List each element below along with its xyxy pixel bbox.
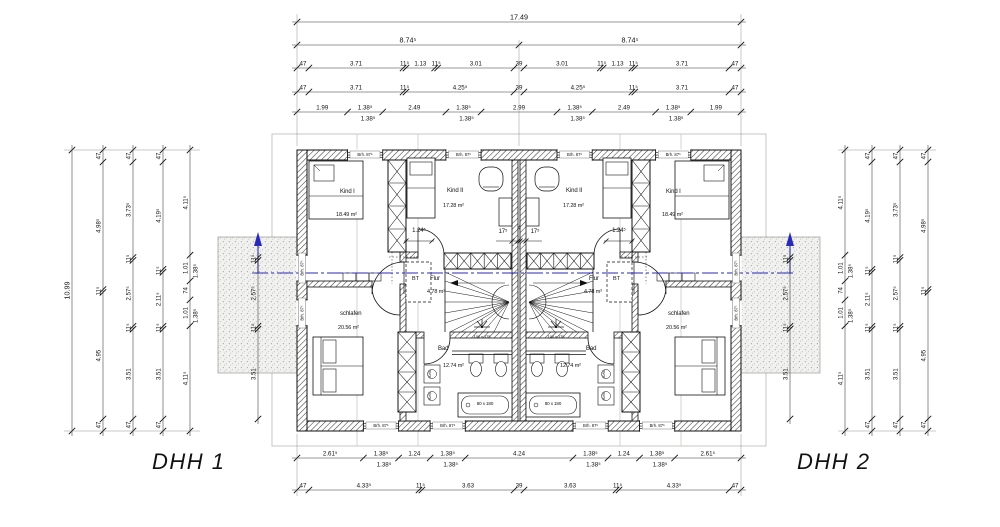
svg-text:2.57⁵: 2.57⁵ [892,286,899,301]
svg-text:3.71: 3.71 [676,61,689,68]
bathtub-size-label-right: 80 x 180 [531,401,575,406]
svg-text:Brh. 87⁵: Brh. 87⁵ [734,260,739,276]
svg-text:11⁵: 11⁵ [400,85,409,92]
svg-text:2.57⁵: 2.57⁵ [782,286,789,301]
svg-text:1.38⁵: 1.38⁵ [193,308,200,323]
svg-text:2.11⁵: 2.11⁵ [864,292,871,306]
svg-text:2.61⁵: 2.61⁵ [700,451,715,458]
svg-text:2.49: 2.49 [408,105,421,112]
svg-text:47: 47 [732,61,739,68]
room-name-flur-left: Flur [430,276,440,282]
svg-text:11⁵: 11⁵ [782,254,789,263]
svg-text:Brh. 87⁵: Brh. 87⁵ [357,152,373,157]
svg-text:47: 47 [921,421,927,428]
room-area-bad-left: 12.74 m² [443,363,464,369]
svg-text:1.01: 1.01 [838,262,844,274]
svg-text:11⁵: 11⁵ [920,286,927,295]
svg-text:2.49: 2.49 [618,105,631,112]
svg-text:11⁵: 11⁵ [864,266,871,275]
svg-text:4.95: 4.95 [96,349,102,361]
svg-text:47: 47 [865,421,871,428]
room-area-kind2-right: 17.28 m² [563,203,584,209]
svg-text:1.01: 1.01 [183,262,189,274]
svg-text:2.11⁵: 2.11⁵ [155,292,162,306]
svg-text:2.57⁵: 2.57⁵ [250,286,257,301]
svg-text:1.38⁵: 1.38⁵ [583,451,598,458]
svg-text:4.98⁵: 4.98⁵ [95,218,102,233]
room-name-bad-right: Bad [586,346,596,352]
room-area-schlafen-left: 20.56 m² [338,325,359,331]
svg-text:11⁵: 11⁵ [416,483,425,490]
svg-text:47: 47 [893,152,899,159]
svg-text:11⁵: 11⁵ [864,323,871,332]
svg-text:1.38⁵: 1.38⁵ [377,462,392,469]
svg-text:Brh. 87⁵: Brh. 87⁵ [373,423,389,428]
svg-text:1.38⁵: 1.38⁵ [443,462,458,469]
room-name-kind1-left: Kind I [340,189,355,195]
svg-text:11⁵: 11⁵ [782,323,789,332]
svg-text:39: 39 [516,483,523,490]
svg-text:11⁵: 11⁵ [629,85,638,92]
svg-text:47: 47 [126,152,132,159]
room-area-flur-right: 4.78 m² [584,289,602,295]
inline-dim-party-left: 17⁵ [495,229,511,235]
svg-text:4.25⁵: 4.25⁵ [453,85,468,92]
svg-text:3.51: 3.51 [251,368,257,380]
svg-text:39: 39 [516,85,523,92]
svg-text:1.38⁵: 1.38⁵ [650,451,665,458]
svg-text:1.13: 1.13 [414,61,427,68]
svg-text:1.38⁵: 1.38⁵ [358,105,373,112]
svg-text:3.51: 3.51 [156,368,162,380]
svg-text:Brh. 87⁵: Brh. 87⁵ [456,152,472,157]
svg-text:11⁵: 11⁵ [613,483,622,490]
svg-text:3.51: 3.51 [126,368,132,380]
svg-text:3.63: 3.63 [462,483,475,490]
svg-text:1.38⁵: 1.38⁵ [666,105,681,112]
svg-text:1.38⁵: 1.38⁵ [193,264,200,279]
room-area-kind2-left: 17.28 m² [443,203,464,209]
svg-text:1.24: 1.24 [618,451,631,458]
floorplan-drawing: 60/6060/6060/6060/6017.498.74⁵8.74⁵473.7… [0,0,1000,527]
room-name-schlafen-right: schlafen [668,311,690,317]
svg-text:4.19⁵: 4.19⁵ [155,208,162,223]
inline-dim-door-right: 1.24⁵ [605,228,633,234]
svg-text:3.73⁵: 3.73⁵ [892,202,899,217]
svg-text:47: 47 [300,85,307,92]
room-name-schlafen-left: schlafen [340,311,362,317]
svg-text:3.73⁵: 3.73⁵ [125,202,132,217]
svg-text:11⁵: 11⁵ [155,266,162,275]
svg-text:11⁵: 11⁵ [432,61,441,68]
svg-text:1.38⁵: 1.38⁵ [567,105,582,112]
svg-text:Brh. 87⁵: Brh. 87⁵ [666,152,682,157]
svg-text:2.57⁵: 2.57⁵ [125,286,132,301]
svg-text:1.99: 1.99 [316,105,329,112]
svg-text:10.99: 10.99 [62,282,71,300]
svg-text:1.38⁵: 1.38⁵ [848,308,855,323]
room-area-kind1-right: 18.49 m² [662,212,683,218]
svg-text:1.38⁵: 1.38⁵ [456,105,471,112]
svg-text:4.24: 4.24 [513,451,526,458]
svg-text:3.71: 3.71 [676,85,689,92]
svg-text:3.51: 3.51 [865,368,871,380]
svg-text:4.11⁵: 4.11⁵ [837,371,844,385]
svg-text:1.24: 1.24 [408,451,421,458]
room-name-bt-right: BT [613,276,620,282]
svg-text:4.11⁵: 4.11⁵ [837,195,844,209]
svg-text:1.38⁵: 1.38⁵ [459,116,474,123]
svg-text:47: 47 [300,61,307,68]
svg-text:1.13: 1.13 [612,61,625,68]
svg-text:3.71: 3.71 [350,61,363,68]
svg-text:11⁵: 11⁵ [597,61,606,68]
svg-text:11⁵: 11⁵ [629,61,638,68]
svg-text:47: 47 [893,421,899,428]
svg-text:3.51: 3.51 [893,368,899,380]
svg-text:60/60: 60/60 [428,370,432,379]
svg-text:1.38⁵: 1.38⁵ [848,264,855,279]
svg-text:4.19⁵: 4.19⁵ [864,208,871,223]
room-area-schlafen-right: 20.56 m² [666,325,687,331]
svg-text:3.01: 3.01 [556,61,569,68]
svg-text:47: 47 [300,483,307,490]
room-name-kind2-left: Kind II [447,188,463,194]
svg-text:4.11⁵: 4.11⁵ [182,371,189,385]
svg-text:4.98⁵: 4.98⁵ [920,218,927,233]
room-area-bad-right: 12.74 m² [560,363,581,369]
svg-text:47: 47 [921,152,927,159]
svg-text:1.38⁵: 1.38⁵ [586,462,601,469]
svg-text:1.01: 1.01 [183,306,189,318]
svg-text:47: 47 [96,152,102,159]
svg-text:74: 74 [183,286,189,293]
svg-text:60/60: 60/60 [428,392,432,401]
svg-text:3.51: 3.51 [783,368,789,380]
svg-text:4.95: 4.95 [921,349,927,361]
inline-dim-party-right: 17⁵ [527,229,543,235]
room-name-bad-left: Bad [438,346,448,352]
svg-text:47: 47 [126,421,132,428]
inline-dim-party-gap: 4 [512,226,526,232]
svg-text:47: 47 [732,483,739,490]
svg-text:Brh. 87⁵: Brh. 87⁵ [583,423,599,428]
svg-text:2.61⁵: 2.61⁵ [323,451,338,458]
room-area-kind1-left: 18.49 m² [336,212,357,218]
room-name-flur-right: Flur [589,276,599,282]
svg-text:3.71: 3.71 [350,85,363,92]
svg-text:4.33⁵: 4.33⁵ [357,483,372,490]
svg-text:Brh. 87⁵: Brh. 87⁵ [300,305,305,321]
svg-text:11⁵: 11⁵ [250,323,257,332]
svg-text:60/60: 60/60 [602,370,606,379]
room-name-kind1-right: Kind I [666,189,681,195]
svg-text:17.49: 17.49 [510,13,528,22]
svg-text:1.01: 1.01 [838,306,844,318]
svg-text:2.99: 2.99 [513,105,526,112]
svg-text:11⁵: 11⁵ [892,323,899,332]
svg-text:Brh. 87⁵: Brh. 87⁵ [440,423,456,428]
svg-text:1.38⁵: 1.38⁵ [374,451,389,458]
svg-text:1.38⁵: 1.38⁵ [570,116,585,123]
svg-text:3.01: 3.01 [470,61,483,68]
svg-text:Brh. 87⁵: Brh. 87⁵ [650,423,666,428]
svg-text:11⁵: 11⁵ [125,323,132,332]
svg-text:1.38⁵: 1.38⁵ [361,116,376,123]
svg-text:47: 47 [865,152,871,159]
room-name-kind2-right: Kind II [566,188,582,194]
inline-dim-door-left: 1.24⁵ [405,228,433,234]
svg-text:1.38⁵: 1.38⁵ [653,462,668,469]
svg-text:8.74⁵: 8.74⁵ [622,36,639,45]
svg-text:Brh. 87⁵: Brh. 87⁵ [567,152,583,157]
svg-text:11⁵: 11⁵ [892,254,899,263]
svg-text:47: 47 [732,85,739,92]
room-area-flur-left: 4.78 m² [427,289,445,295]
svg-text:11⁵: 11⁵ [155,323,162,332]
svg-text:8.74⁵: 8.74⁵ [400,36,417,45]
svg-text:4.33⁵: 4.33⁵ [667,483,682,490]
svg-text:Brh. 87⁵: Brh. 87⁵ [300,260,305,276]
svg-text:Brh. 87⁵: Brh. 87⁵ [734,305,739,321]
svg-text:1.38⁵: 1.38⁵ [669,116,684,123]
unit-label-dhh1: DHH 1 [152,449,226,475]
room-name-bt-left: BT [412,276,419,282]
svg-text:11⁵: 11⁵ [95,286,102,295]
roof-window-size-label-left: 100 x 175 [460,334,504,339]
svg-text:4.11⁵: 4.11⁵ [182,195,189,209]
svg-text:47: 47 [156,152,162,159]
svg-text:39: 39 [516,61,523,68]
svg-text:1.38⁵: 1.38⁵ [440,451,455,458]
svg-text:4.25⁵: 4.25⁵ [571,85,586,92]
svg-text:47: 47 [96,421,102,428]
svg-text:74: 74 [838,286,844,293]
floorplan-canvas: 60/6060/6060/6060/6017.498.74⁵8.74⁵473.7… [0,0,1000,527]
roof-window-size-label-right: 100 x 175 [534,334,578,339]
svg-text:47: 47 [156,421,162,428]
bathtub-size-label-left: 80 x 180 [463,401,507,406]
svg-text:3.63: 3.63 [564,483,577,490]
svg-text:60/60: 60/60 [602,392,606,401]
svg-text:11⁵: 11⁵ [400,61,409,68]
svg-text:11⁵: 11⁵ [125,254,132,263]
svg-text:1.99: 1.99 [710,105,723,112]
unit-label-dhh2: DHH 2 [797,449,871,475]
svg-text:11⁵: 11⁵ [250,254,257,263]
